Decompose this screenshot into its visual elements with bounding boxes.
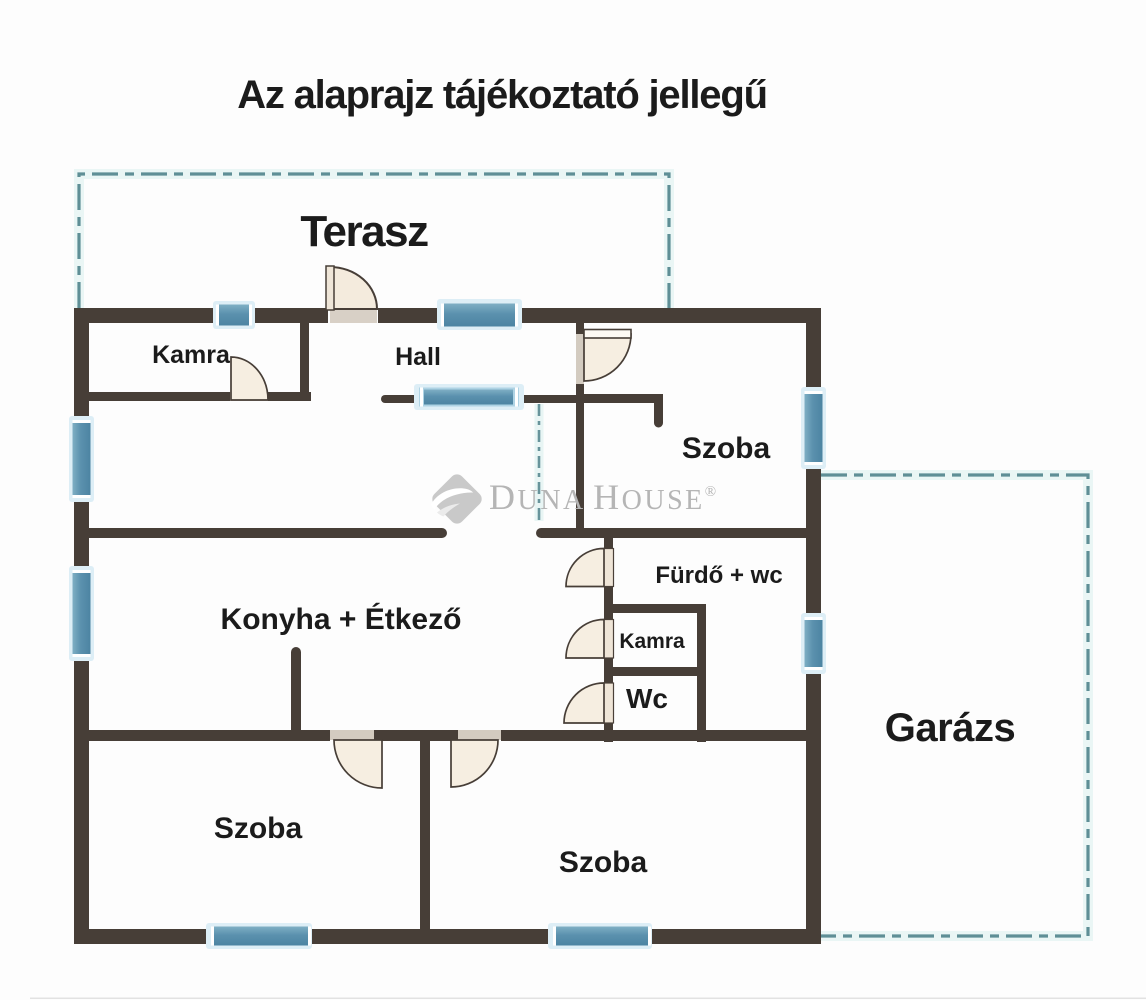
svg-text:Szoba: Szoba: [559, 846, 648, 879]
svg-text:Garázs: Garázs: [885, 706, 1015, 750]
svg-text:Kamra: Kamra: [619, 630, 685, 653]
svg-text:Szoba: Szoba: [682, 432, 771, 465]
svg-text:Konyha + Étkező: Konyha + Étkező: [221, 602, 462, 636]
svg-text:DUNA HOUSE®: DUNA HOUSE®: [489, 477, 719, 517]
svg-text:Fürdő + wc: Fürdő + wc: [655, 562, 782, 589]
svg-text:Wc: Wc: [626, 683, 668, 714]
svg-text:Kamra: Kamra: [152, 341, 231, 369]
svg-text:Az alaprajz tájékoztató jelleg: Az alaprajz tájékoztató jellegű: [237, 73, 767, 117]
svg-text:Hall: Hall: [395, 343, 441, 371]
svg-text:Szoba: Szoba: [214, 812, 303, 845]
svg-text:Terasz: Terasz: [300, 207, 428, 256]
